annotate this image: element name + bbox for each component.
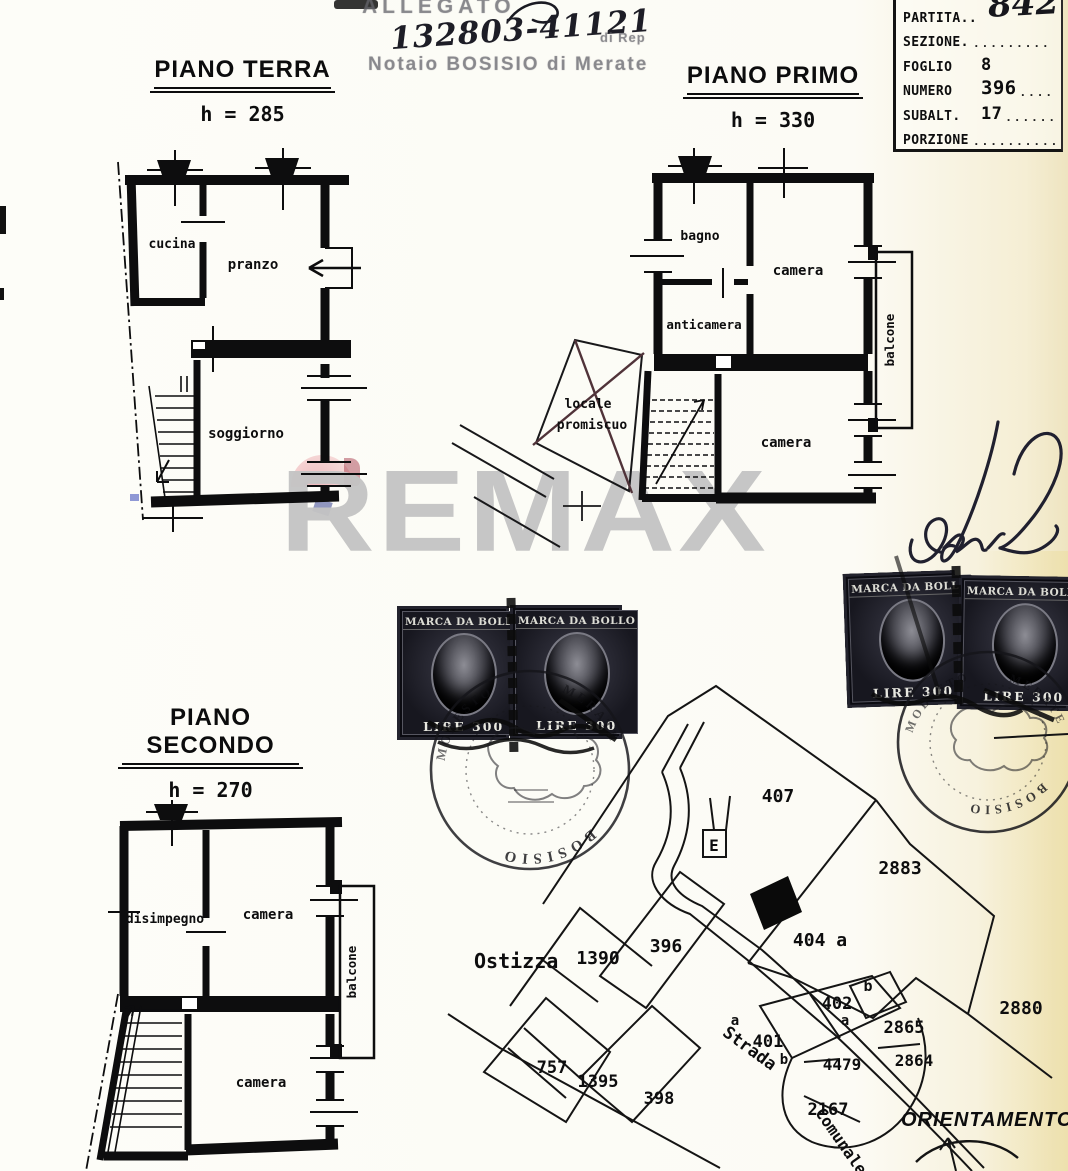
parcel-label: 2883 — [878, 858, 921, 879]
table-row: PORZIONE................. — [903, 124, 1057, 149]
parcel-label: b — [780, 1052, 788, 1068]
room-label: bagno — [680, 229, 719, 244]
notary-stamp-text: Notaio BOSISIO di Merate — [368, 54, 648, 76]
stamp-title: MARCA DA BOLLO — [849, 580, 971, 598]
room-label: cucina — [149, 237, 196, 252]
marca-da-bollo-stamp: MARCA DA BOLLO LIRE 300 — [397, 606, 509, 740]
stamp-portrait — [544, 632, 610, 715]
parcel-label: 404 a — [793, 930, 847, 951]
orientation-title: ORIENTAMENTO — [901, 1109, 1068, 1132]
floor-plan-secondo: disimpegno camera camera balcone — [78, 800, 388, 1171]
parcel-label: b — [863, 977, 872, 995]
staircase — [149, 376, 197, 498]
stamp-title: MARCA DA BOLLO — [965, 585, 1068, 601]
cadastral-map: E 407 2883 1390 396 404 a b 402 a 2880 a… — [448, 676, 1068, 1171]
room-label: disimpegno — [126, 912, 204, 927]
floor-title: PIANO PRIMO — [683, 62, 863, 99]
survey-cross — [563, 491, 601, 521]
parcel-numbers: 407 2883 1390 396 404 a b 402 a 2880 a 4… — [537, 786, 1043, 1120]
stamp-title: MARCA DA BOLLO — [516, 615, 637, 629]
parcel-boundaries — [448, 686, 1068, 1171]
scan-edge-mark — [0, 288, 4, 300]
annex-label: locale — [565, 397, 612, 412]
parcel-label: 1390 — [576, 948, 619, 969]
scan-edge-mark — [0, 206, 6, 234]
room-label: camera — [761, 435, 812, 451]
entrance-arrow-icon — [309, 260, 361, 276]
table-row: FOGLIO8 — [903, 50, 1057, 75]
table-row: NUMERO396.... — [903, 75, 1057, 100]
stamp-value: LIRE 300 — [536, 718, 617, 733]
floor-terra-title-block: PIANO TERRA h = 285 — [140, 56, 345, 126]
map-marker-e: E — [709, 836, 719, 855]
handwritten-partita-value: 842 — [987, 0, 1060, 26]
window-door-symbols — [108, 800, 358, 1126]
stamp-value: LIRE 300 — [983, 688, 1064, 704]
floor-height-label: h = 285 — [140, 102, 345, 126]
marca-da-bollo-stamp: MARCA DA BOLLO LIRE 300 — [957, 575, 1068, 711]
table-row: SEZIONE.......... — [903, 26, 1057, 51]
road-lines — [452, 425, 560, 547]
stamp-title: MARCA DA BOLLO — [403, 616, 524, 630]
subject-building — [750, 876, 802, 930]
parcel-label: 4479 — [823, 1055, 862, 1074]
parcel-label: a — [841, 1013, 849, 1029]
parcel-label: 1395 — [578, 1072, 619, 1092]
floor-secondo-title-block: PIANO SECONDO h = 270 — [118, 704, 303, 802]
stamp-value: LIRE 300 — [423, 719, 504, 734]
stamp-portrait — [877, 598, 946, 683]
scanned-floor-plan-document: REMAX ALLEGATO 132803-41121 di Rep Notai… — [0, 0, 1068, 1171]
floor-primo-title-block: PIANO PRIMO h = 330 — [678, 62, 868, 132]
parcel-label: 396 — [650, 936, 683, 957]
floor-title: PIANO SECONDO — [118, 704, 303, 769]
parcel-label: 2864 — [895, 1051, 934, 1070]
floor-title: PIANO TERRA — [150, 56, 334, 93]
floor-plan-primo: bagno camera anticamera camera balcone — [628, 148, 938, 528]
parcel-label: 2880 — [999, 998, 1042, 1019]
room-label: balcone — [344, 945, 359, 998]
parcel-label: 402 — [822, 994, 853, 1014]
room-label: camera — [773, 263, 824, 279]
walls — [642, 174, 876, 500]
di-rep-text: di Rep — [600, 30, 646, 45]
annex-outline — [536, 340, 642, 491]
marca-da-bollo-stamp: MARCA DA BOLLO LIRE 300 — [510, 605, 622, 739]
parcel-label: 407 — [762, 786, 795, 807]
room-label: balcone — [882, 313, 897, 366]
marca-da-bollo-stamp: MARCA DA BOLLO LIRE 300 — [843, 570, 960, 708]
annex-locale-promiscuo: locale promiscuo — [430, 315, 670, 530]
room-label: pranzo — [228, 257, 279, 273]
stamp-portrait — [431, 633, 497, 716]
room-label: soggiorno — [208, 426, 284, 442]
room-label: anticamera — [666, 317, 741, 332]
parcel-label: 398 — [644, 1089, 675, 1109]
ink-speck — [130, 494, 139, 501]
floor-height-label: h = 330 — [678, 108, 868, 132]
parcel-label: 757 — [537, 1058, 568, 1078]
walls — [100, 822, 342, 1160]
table-row: SUBALT.17....... — [903, 99, 1057, 124]
parcel-label: 2865 — [884, 1018, 925, 1038]
stamp-value: LIRE 300 — [873, 683, 954, 701]
staircase — [108, 1006, 182, 1152]
floor-height-label: h = 270 — [118, 778, 303, 802]
floor-plan-terra: cucina pranzo soggiorno — [85, 148, 385, 533]
place-label: Ostizza — [474, 949, 558, 973]
room-label: camera — [243, 907, 294, 923]
cadastral-data-table: PARTITA.. SEZIONE.......... FOGLIO8 NUME… — [893, 0, 1063, 152]
room-label: camera — [236, 1075, 287, 1091]
stamp-portrait — [991, 603, 1058, 687]
handwritten-signature — [896, 416, 1068, 571]
annex-label: promiscuo — [557, 418, 628, 433]
